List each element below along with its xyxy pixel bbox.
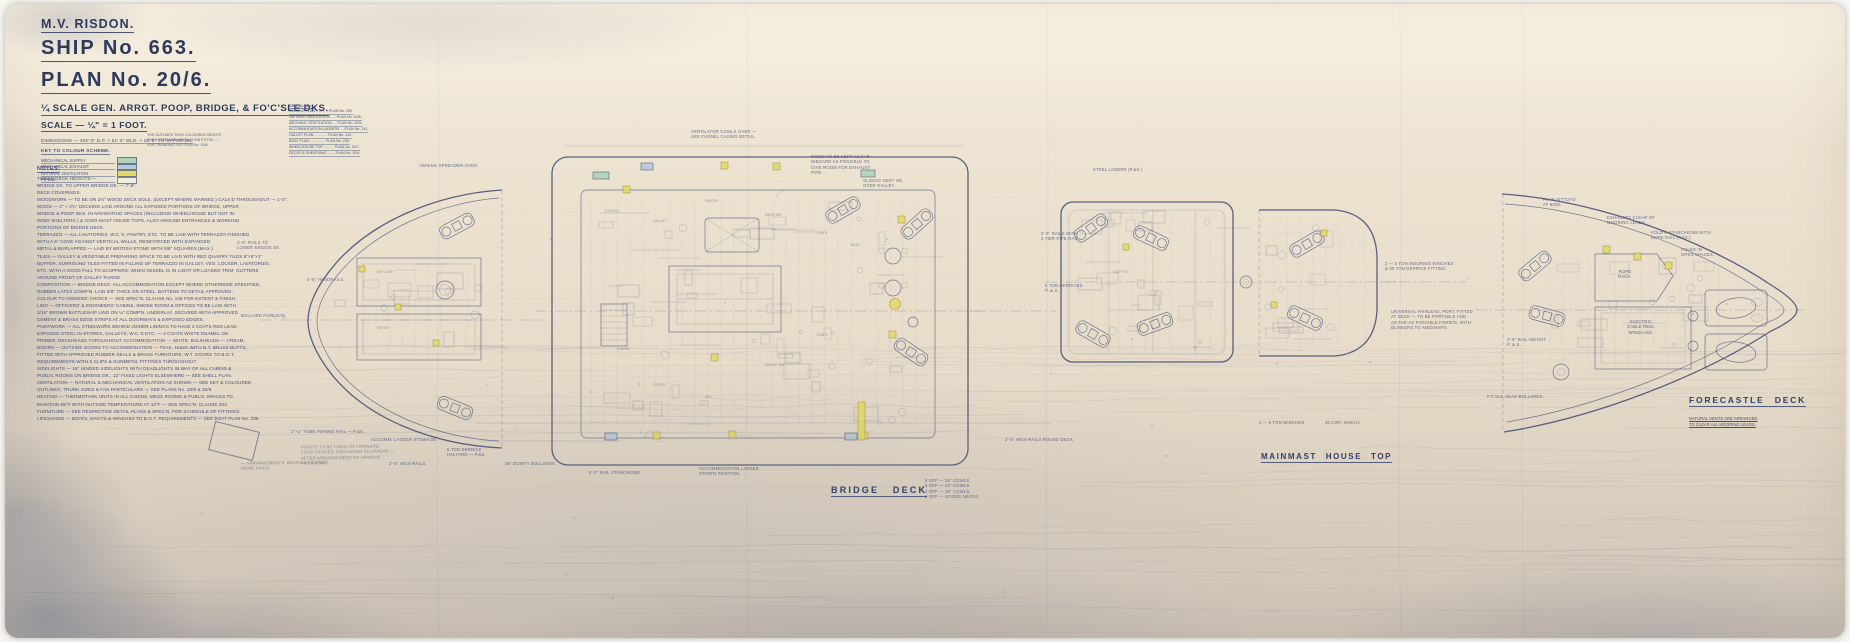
plan-annotation: 8 OFF — 36" COWLS. 6 OFF — 24" COWLS. 4 … [925,478,980,500]
plan-annotation: FOLD'G STANCHIONS WITH ROPE RAIL (P.&S.) [1651,230,1711,241]
colour-swatch [117,157,137,164]
note-line: COMPOSITION — BRIDGE DECK: ALL ACCOMMODA… [37,281,293,288]
plan-annotation: PANTRY [705,199,719,203]
notes-block: NOTES. TWEEN DECK HEIGHTS:— BRIDGE DK. T… [37,166,293,422]
colour-key-note: THE OUTLINES THUS COLOURED DENOTE THE SY… [147,133,225,148]
natural-vent [1665,262,1672,269]
note-line: DECK COVERINGS. [37,189,293,196]
plan-annotation: MAST HO. [1113,270,1130,274]
note-line: RUBBER LATEX COMP'N. LAID 5/8" THICK ON … [37,288,293,295]
note-line: VENTILATION — NATURAL & MECHANICAL VENTI… [37,379,293,386]
mech-exhaust-vent [845,433,857,440]
note-line: WOOD — 2" × 2½" DECKING LAID AROUND ALL … [37,203,293,210]
mainmast-house-top-plan [1045,202,1405,362]
plan-annotation: 2'-6" RAIL HEIGHT P. & S. [1507,337,1546,348]
plan-annotation: 2'-6" RAILS WITH 3 TIER PIPE RAIL. [1041,231,1080,242]
plan-annotation: SLIDING VENT HD. OVER GALLEY. [863,178,904,189]
mech-supply-vent [593,172,609,179]
natural-vent [1123,244,1129,250]
winch [1528,305,1566,328]
natural-vent [1271,302,1277,308]
note-line: AROUND FRONT OF GALLEY RANGE. [37,274,293,281]
natural-vent [653,432,660,439]
natural-vent-cowl [890,299,901,310]
colour-key-item: MECHANICAL SUPPLY [41,158,137,163]
note-line: BUFFER, SURROUND TILES FITTED IN FILLING… [37,260,293,267]
plan-annotation: 2'-6" HIGH RAILS ROUND DECK. [1005,437,1074,442]
plan-annotation: VENTILATOR COWLS OVER — SEE FUNNEL CASIN… [691,129,756,140]
natural-vent [898,216,905,223]
note-line: TILES — GALLEY & VEGETABLE PREPARING SPA… [37,253,293,260]
natural-vent [395,304,401,310]
note-line: TWEEN DECK HEIGHTS:— [37,175,293,182]
natural-vent [729,431,736,438]
plan-annotation: EXHAUSTS CLEAR OF MOORING LEADS. [1607,215,1655,226]
mech-exhaust-vent [641,163,653,170]
winch [1517,249,1554,283]
natural-vent [721,162,728,169]
note-line: FURNITURE — SEE RESPECTIVE DETAIL PLANS … [37,408,293,415]
plan-annotation: GALLEY [653,219,667,223]
plan-annotation: OFFICE [653,383,666,387]
plan-annotation: POLES IN OPEN SPACES. [1681,247,1714,258]
plan-annotation: HATCH [377,326,389,330]
title-block: M.V. RISDON. SHIP No. 663. PLAN No. 20/6… [41,17,329,184]
note-line: ETC. WITH A GOOD FALL TO SCUPPERS; WHEN … [37,267,293,274]
mainmast-house-top-label: MAINMAST HOUSE TOP [1261,452,1392,463]
note-line: REQUIREMENTS WITH 6 CLIPS & GUNMETAL FIT… [37,358,293,365]
plan-annotation: STAIRS [617,347,629,351]
natural-vent [359,266,365,272]
note-line: MAINTAIN 65°F WITH OUTSIDE TEMPERATURE A… [37,401,293,408]
plan-annotation: ROOM TO BE KEPT AS FAR INBOARD AS POSSIB… [811,154,870,176]
winch [899,207,935,241]
plan-annotation: 2 — 5 TON WINCHES. [1259,420,1306,425]
plan-annotation: SKYLIGHT [377,270,394,274]
plan-annotation: ELECTRIC CABLE REEL WINDLASS. [1627,319,1655,335]
mech-exhaust-vent [605,433,617,440]
plan-annotation: 5 TON DERRICKS P. & S. [1045,283,1083,294]
plan-annotation: STORES [605,209,619,213]
plan-annotation: AWNING SPREADER OVER. [419,163,479,168]
natural-vent [623,186,630,193]
plan-annotation: 36" DOWTY BOLLARDS. [505,461,556,466]
plan-subtitle: ¼ SCALE GEN. ARRGT. POOP, BRIDGE, & FO'C… [41,103,329,116]
note-line: LIFESAVING — BOATS, DAVITS & WINCHES TO … [37,415,293,422]
note-line: PORTIONS OF BRIDGE DECK. [37,224,293,231]
note-line: COLOUR TO OWNERS' CHOICE — SEE SPEC'N. C… [37,295,293,302]
winch [1288,229,1326,259]
plan-annotation: UNIVERSAL FAIRLEAD, PORT, FITTED AT DECK… [1391,309,1473,331]
plan-annotation: 5'-0" RAIL STANCHIONS. [589,470,642,475]
natural-vent [1321,230,1327,236]
plan-annotation: CAB'N [817,231,827,235]
plan-annotation: ACCOMMODATION LADDER STOW'D POSITION. [699,466,759,477]
natural-vent-trunk [858,402,865,440]
pencil-note: POINTS TO BE FIXED TO FORWARD FOOD STORE… [301,443,397,466]
ship-number: SHIP No. 663. [41,37,196,62]
note-line: PRIMER; DECKHEADS THROUGHOUT ACCOMMODATI… [37,337,293,344]
forecastle-deck-label: FORECASTLE DECK [1689,395,1806,407]
plan-annotation: 1"×1" TUBE AWNING RAIL — P.&S. [291,429,364,434]
winch [438,211,476,240]
winch [892,336,930,368]
note-line: EXPOSED STEEL IN STORES, GALLEYS, W.C.'S… [37,330,293,337]
note-line: TERRAZZO — ALL LAVATORIES, W.C.'S, PANTR… [37,231,293,238]
note-line: PAINTWORK — ALL STEELWORK BEHIND JOINER … [37,323,293,330]
note-line: WING SHELTERS.) & OVER MAST HOUSE TOPS, … [37,217,293,224]
plan-annotation: SMOKE RM. [765,363,785,367]
plan-annotation: 5 TON DERRICK HALYARD — P.&S. [447,447,486,458]
colour-key-heading: KEY TO COLOUR SCHEME. [41,149,110,155]
plan-annotation: 2'-6" RAILS TO LOWER BRIDGE DK. [237,240,281,251]
see-also-list: SEE ALSO:— RIGGING PLAN ............ PLA… [289,103,368,158]
note-line: OUTLINES; TRUNK SIZES & FAN PARTICULARS … [37,386,293,393]
plan-annotation: PLAN ATT'CH'D AT BOW. [1543,197,1576,208]
natural-vent [889,331,896,338]
note-line: FITTED WITH APPROVED RUBBER SEALS & BRAS… [37,351,293,358]
note-line: LINO — OFFICERS' & ENGINEERS' CABINS, SM… [37,302,293,309]
natural-vent [711,354,718,361]
bridge-deck-label: BRIDGE DECK [831,485,927,497]
notes-lines: TWEEN DECK HEIGHTS:— BRIDGE DK. TO UPPER… [37,175,293,422]
drawing-sheet: M.V. RISDON. SHIP No. 663. PLAN No. 20/6… [5,4,1845,638]
plan-annotation: BOLLARD FAIRLEAD. [241,313,287,318]
see-also-item: DECKS & SHEATHING ....... PLAN No. 20/4. [289,152,360,157]
notes-heading: NOTES. [37,166,60,173]
vessel-name: M.V. RISDON. [41,17,134,33]
scale-note: SCALE — ¼" = 1 FOOT. [41,120,147,132]
plan-annotation: 2 — 5 TON MOORING WINCHES & 30 TON DERRI… [1385,261,1454,272]
winch [1136,311,1175,336]
winch [436,395,475,421]
natural-vent [433,340,439,346]
plan-annotation: F'C'SLE HEAD BOLLARDS. [1487,394,1544,399]
winch [1132,224,1171,252]
note-line: BRIDGE DK. TO UPPER BRIDGE DK. — 7'-6". [37,182,293,189]
forecastle-vents-note: NATURAL VENTS ARE ARRANGED TO CLEAR ALL … [1689,416,1757,429]
colour-key-label: MECHANICAL SUPPLY [41,158,115,164]
note-line: PUBLIC ROOMS ON BRIDGE DK.; 12" FIXED LI… [37,372,293,379]
natural-vent [773,163,780,170]
plan-annotation: 30 CWT. WINCH. [1325,420,1360,425]
note-line: DOORS — OUTSIDE DOORS TO ACCOMMODATION —… [37,344,293,351]
see-also-heading: SEE ALSO:— [289,103,316,109]
natural-vent [1603,246,1610,253]
note-line: BRIDGE & POOP DKS. IN NAVIGATING SPACES … [37,210,293,217]
see-also-rows: RIGGING PLAN ............ PLAN No. 250.N… [289,110,368,157]
plan-annotation: BATH [851,243,860,247]
note-line: HEATING — THERMOTANK UNITS IN ALL CABINS… [37,393,293,400]
plan-number: PLAN No. 20/6. [41,69,211,94]
note-line: SIDELIGHTS — 16" HINGED SIDELIGHTS WITH … [37,365,293,372]
note-line: WOODWORK — TO BE ON 2½" WOOD DECK SOLE. … [37,196,293,203]
plan-annotation: W.C. [705,395,713,399]
plan-annotation: MESS RM. [765,213,782,217]
plan-annotation: ROPE RACK. [1618,269,1632,280]
plan-annotation: 2'-6" HANDRAILS. [307,277,345,282]
natural-vent [1634,253,1641,260]
plan-annotation: STEEL LADDER (P.&S.) [1093,167,1142,172]
capstan [1553,364,1569,380]
plan-annotation: ACCOMM. LADDER STOWAGE. [371,437,438,442]
plan-annotation: CAB'N [817,333,827,337]
